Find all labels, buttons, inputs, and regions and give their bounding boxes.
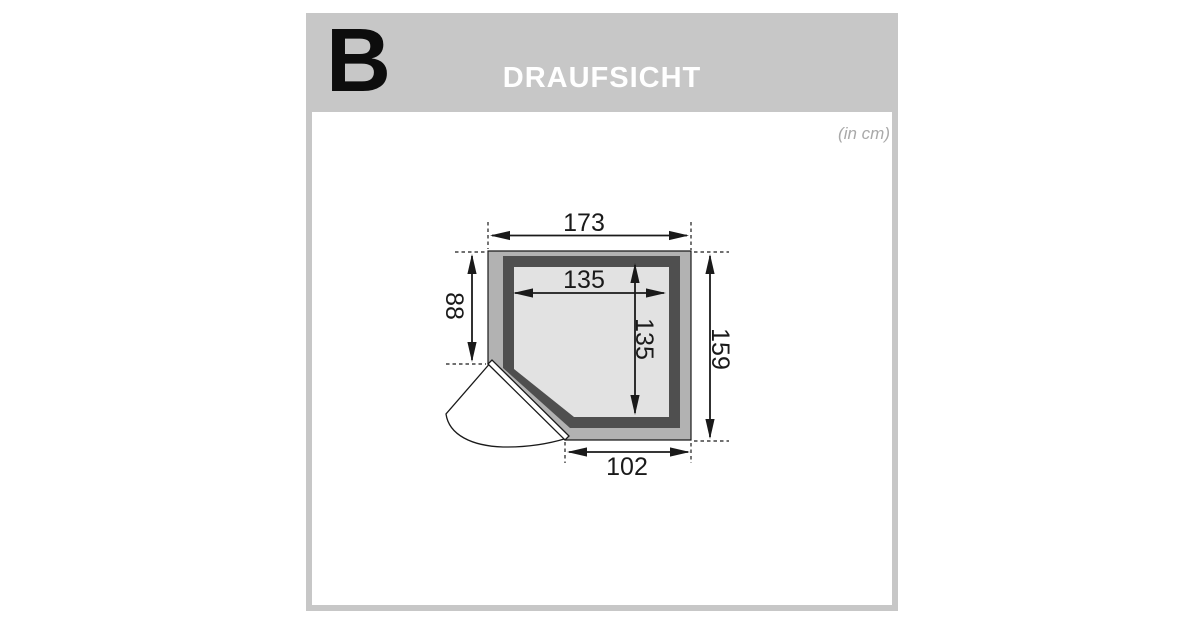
- dim-label-inner-depth: 135: [630, 318, 658, 360]
- dim-outer-depth: 159: [694, 252, 734, 441]
- dim-label-left-depth: 88: [440, 292, 468, 320]
- arrow-right-icon: [669, 231, 689, 240]
- page-background: B DRAUFSICHT (in cm) 173: [0, 0, 1200, 629]
- arrow-down-icon: [705, 419, 714, 439]
- arrow-up-icon: [467, 254, 476, 274]
- arrow-left-icon: [567, 447, 587, 456]
- dim-label-outer-depth: 159: [706, 328, 734, 370]
- dim-door-side-width: 102: [565, 442, 691, 481]
- arrow-left-icon: [490, 231, 510, 240]
- dim-left-depth: 88: [440, 252, 486, 364]
- floor-plan-drawing: 173 88 135 135: [0, 0, 1200, 629]
- arrow-right-icon: [670, 447, 690, 456]
- dim-label-outer-width: 173: [563, 209, 605, 237]
- dim-label-door-side-width: 102: [606, 453, 648, 481]
- dim-label-inner-width: 135: [563, 266, 605, 294]
- arrow-up-icon: [705, 254, 714, 274]
- dim-outer-width: 173: [488, 209, 691, 250]
- arrow-down-icon: [467, 342, 476, 362]
